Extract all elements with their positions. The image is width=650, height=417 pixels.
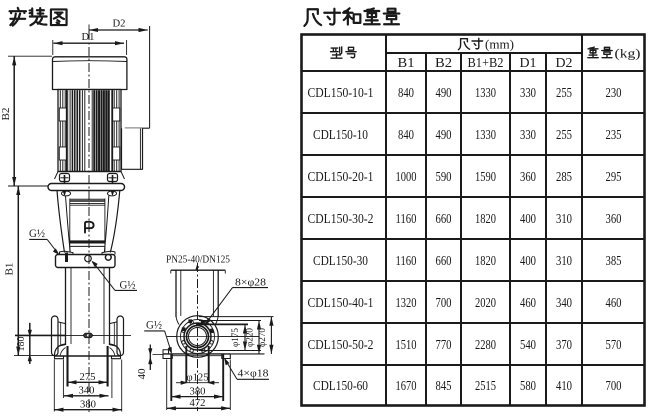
svg-text:330: 330 <box>520 86 536 101</box>
svg-text:1510: 1510 <box>396 338 417 353</box>
svg-text:G½: G½ <box>120 280 136 292</box>
svg-text:590: 590 <box>436 170 452 185</box>
svg-text:472: 472 <box>190 397 206 409</box>
svg-text:1670: 1670 <box>396 379 417 394</box>
svg-text:B1+B2: B1+B2 <box>468 56 504 71</box>
svg-text:1160: 1160 <box>396 212 417 227</box>
svg-text:D1: D1 <box>520 56 537 71</box>
svg-text:660: 660 <box>436 254 452 269</box>
svg-text:660: 660 <box>436 212 452 227</box>
svg-text:CDL150-60: CDL150-60 <box>313 379 368 394</box>
svg-text:570: 570 <box>606 338 622 353</box>
svg-text:380: 380 <box>80 398 96 410</box>
svg-text:230: 230 <box>606 86 622 101</box>
svg-text:360: 360 <box>606 212 622 227</box>
svg-text:B1: B1 <box>398 56 415 71</box>
svg-text:B1: B1 <box>4 263 16 276</box>
svg-text:D2: D2 <box>113 18 126 30</box>
svg-text:360: 360 <box>520 170 536 185</box>
svg-text:2515: 2515 <box>475 379 496 394</box>
svg-text:1820: 1820 <box>475 254 496 269</box>
svg-text:700: 700 <box>436 296 452 311</box>
svg-text:2280: 2280 <box>475 338 496 353</box>
svg-text:CDL150-10: CDL150-10 <box>313 128 368 143</box>
svg-text:4×φ18: 4×φ18 <box>238 368 270 380</box>
svg-text:1820: 1820 <box>475 212 496 227</box>
svg-text:840: 840 <box>398 128 414 143</box>
svg-text:845: 845 <box>436 379 452 394</box>
svg-text:275: 275 <box>80 371 96 383</box>
svg-text:(mm): (mm) <box>485 37 514 52</box>
svg-text:1330: 1330 <box>475 128 496 143</box>
svg-text:CDL150-40-1: CDL150-40-1 <box>308 296 374 311</box>
svg-text:1330: 1330 <box>475 86 496 101</box>
svg-text:310: 310 <box>556 212 572 227</box>
svg-text:1160: 1160 <box>396 254 417 269</box>
svg-text:410: 410 <box>556 379 572 394</box>
svg-text:CDL150-20-1: CDL150-20-1 <box>308 170 374 185</box>
svg-text:1320: 1320 <box>396 296 417 311</box>
svg-text:180: 180 <box>16 337 27 352</box>
svg-text:285: 285 <box>556 170 572 185</box>
svg-text:1000: 1000 <box>396 170 417 185</box>
svg-text:380: 380 <box>190 385 206 397</box>
svg-text:460: 460 <box>520 296 536 311</box>
svg-text:φ270: φ270 <box>257 328 268 347</box>
svg-text:G½: G½ <box>146 320 162 332</box>
svg-text:CDL150-30: CDL150-30 <box>313 254 368 269</box>
svg-text:340: 340 <box>79 385 95 397</box>
svg-text:490: 490 <box>436 128 452 143</box>
svg-text:1590: 1590 <box>475 170 496 185</box>
svg-text:235: 235 <box>606 128 622 143</box>
svg-text:840: 840 <box>398 86 414 101</box>
svg-text:385: 385 <box>606 254 622 269</box>
svg-text:D1: D1 <box>82 31 95 43</box>
svg-text:370: 370 <box>556 338 572 353</box>
svg-text:8×φ28: 8×φ28 <box>235 277 267 289</box>
svg-text:400: 400 <box>520 212 536 227</box>
svg-text:CDL150-50-2: CDL150-50-2 <box>308 338 374 353</box>
svg-text:460: 460 <box>606 296 622 311</box>
svg-text:CDL150-30-2: CDL150-30-2 <box>308 212 374 227</box>
svg-text:B2: B2 <box>0 108 12 121</box>
svg-text:G½: G½ <box>29 228 45 240</box>
svg-text:B2: B2 <box>435 56 452 71</box>
svg-text:295: 295 <box>606 170 622 185</box>
svg-text:(kg): (kg) <box>615 46 641 61</box>
svg-text:255: 255 <box>556 128 572 143</box>
svg-text:330: 330 <box>520 128 536 143</box>
svg-text:770: 770 <box>436 338 452 353</box>
svg-text:D2: D2 <box>556 56 573 71</box>
svg-text:φ220: φ220 <box>245 328 256 347</box>
svg-text:400: 400 <box>520 254 536 269</box>
svg-text:255: 255 <box>556 86 572 101</box>
svg-text:40: 40 <box>137 369 148 380</box>
svg-text:540: 540 <box>520 338 536 353</box>
svg-text:340: 340 <box>556 296 572 311</box>
svg-text:φ175: φ175 <box>230 328 241 347</box>
svg-text:580: 580 <box>520 379 536 394</box>
svg-text:2020: 2020 <box>475 296 496 311</box>
svg-text:310: 310 <box>556 254 572 269</box>
svg-text:490: 490 <box>436 86 452 101</box>
svg-text:700: 700 <box>606 379 622 394</box>
svg-text:φ125: φ125 <box>187 372 209 383</box>
svg-text:CDL150-10-1: CDL150-10-1 <box>308 86 374 101</box>
